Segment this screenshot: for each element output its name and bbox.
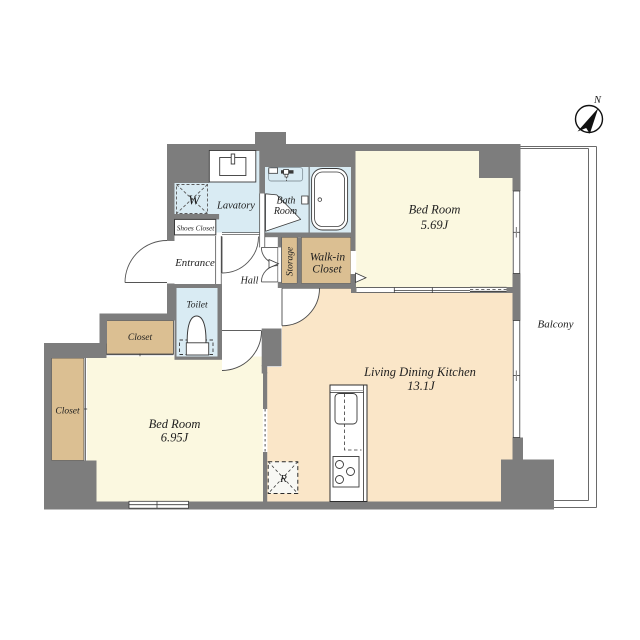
svg-text:6.95J: 6.95J [161, 431, 190, 445]
svg-text:Closet: Closet [55, 407, 80, 417]
svg-text:Room: Room [273, 206, 297, 217]
svg-text:Lavatory: Lavatory [216, 201, 255, 212]
svg-text:Toilet: Toilet [186, 301, 208, 311]
svg-text:N: N [593, 95, 602, 106]
svg-text:13.1J: 13.1J [407, 379, 436, 393]
svg-text:5.69J: 5.69J [421, 218, 450, 232]
svg-text:R: R [279, 473, 287, 485]
svg-text:W: W [188, 194, 201, 209]
svg-text:Hall: Hall [240, 276, 259, 287]
svg-text:Closet: Closet [312, 264, 342, 276]
svg-text:Closet: Closet [128, 333, 153, 343]
svg-text:Bed Room: Bed Room [149, 417, 201, 431]
svg-text:Storage: Storage [286, 247, 296, 277]
svg-text:Shoes Closet: Shoes Closet [177, 224, 215, 233]
svg-text:Bed Room: Bed Room [409, 203, 461, 217]
svg-text:Walk-in: Walk-in [310, 252, 346, 264]
svg-text:Balcony: Balcony [537, 319, 573, 331]
svg-text:Living Dining Kitchen: Living Dining Kitchen [363, 365, 476, 379]
svg-text:Entrance: Entrance [174, 257, 215, 269]
svg-text:Bath: Bath [277, 196, 296, 207]
